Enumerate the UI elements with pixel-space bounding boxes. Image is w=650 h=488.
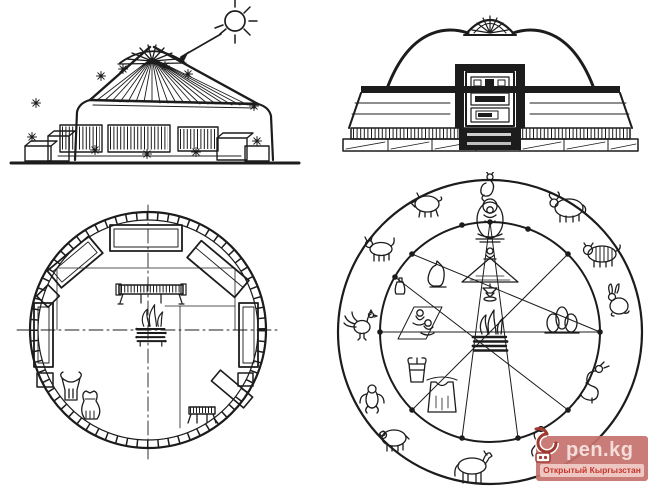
plan-zoning-lines	[57, 268, 235, 428]
watermark-row: pen.kg	[536, 437, 648, 465]
zodiac-ox-icon	[549, 192, 585, 222]
base-platform-icon	[343, 128, 638, 151]
zodiac-monkey-icon	[360, 385, 384, 413]
small-table-icon	[188, 407, 216, 423]
watermark-title: pen.kg	[566, 439, 633, 462]
wall-right	[258, 104, 273, 160]
dome-crown-icon	[464, 16, 516, 35]
sun-icon	[215, 0, 257, 43]
zodiac-rat-icon	[481, 172, 494, 201]
roof-pole-icon	[96, 58, 248, 105]
people-on-mat-icon	[398, 307, 442, 339]
ornate-door-icon	[455, 64, 525, 128]
leather-bag-icon	[82, 391, 100, 419]
watermark-subtitle: Открытый Кыргызстан	[540, 464, 644, 477]
wall-left	[349, 93, 361, 128]
bench-icon	[217, 133, 269, 161]
zodiac-rooster-icon	[344, 310, 377, 340]
yurt-front-elevation-figure	[333, 2, 648, 152]
bucket-icon	[408, 358, 426, 382]
sunray-arrow-icon	[178, 34, 221, 61]
zodiac-dog-icon	[365, 237, 394, 261]
yurt-floor-plan-figure	[5, 198, 295, 483]
vest-icon	[427, 377, 457, 412]
yurt-cross-section-figure	[5, 0, 305, 178]
yurt-schematics-page: pen.kg Открытый Кыргызстан	[0, 0, 650, 488]
bed-icon	[47, 236, 103, 288]
low-table-icon	[116, 284, 186, 304]
hearth-icon	[135, 305, 166, 346]
seated-figure-icon	[462, 248, 518, 282]
circle-node-dots	[377, 219, 603, 441]
saddle-icon	[61, 372, 82, 400]
openkg-logo-icon	[528, 427, 568, 469]
chest-icon	[110, 225, 182, 251]
wall-right	[620, 93, 632, 128]
altar-lamp-icon	[483, 284, 497, 301]
openkg-watermark: pen.kg Открытый Кыргызстан	[536, 436, 648, 481]
bench-icon	[211, 370, 252, 408]
zodiac-hare-icon	[609, 284, 630, 316]
roof-edge-right	[154, 47, 258, 104]
zodiac-pig-icon	[411, 193, 442, 217]
hearth-icon	[472, 310, 509, 352]
chest-icon	[25, 125, 241, 161]
zodiac-horse-icon	[455, 451, 492, 483]
eave-line	[90, 100, 258, 104]
